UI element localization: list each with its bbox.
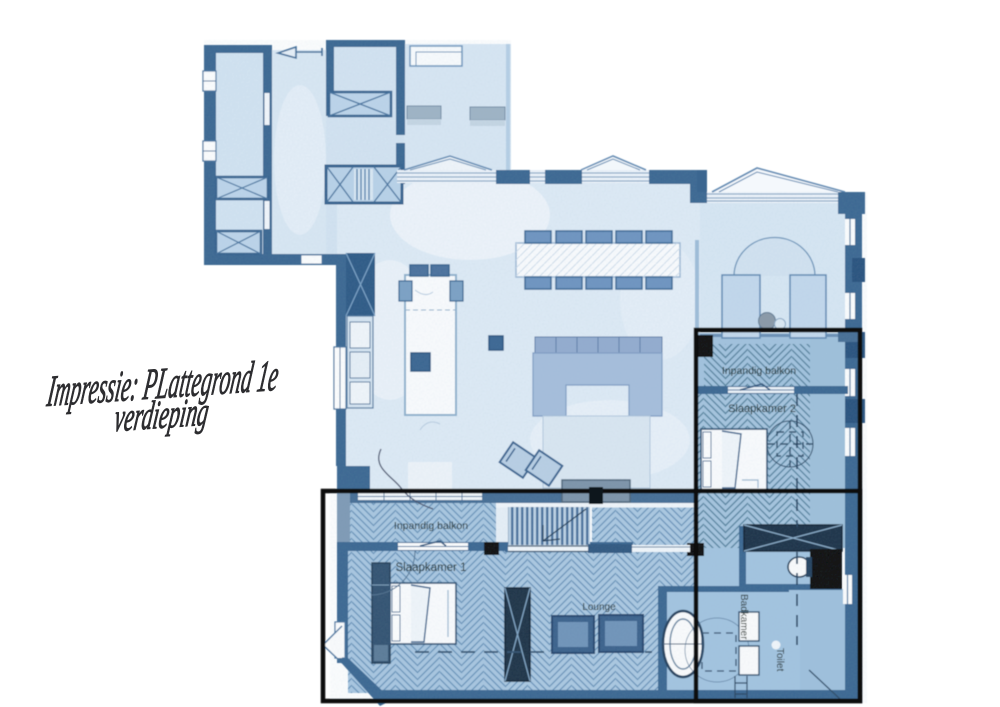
svg-text:verdieping: verdieping <box>112 389 212 441</box>
svg-text:Slaapkamer 2: Slaapkamer 2 <box>728 403 796 415</box>
svg-text:Inpandig balkon: Inpandig balkon <box>722 365 796 377</box>
svg-text:Badkamer: Badkamer <box>738 594 749 640</box>
svg-text:Inpandig balkon: Inpandig balkon <box>394 520 468 532</box>
svg-text:Toilet: Toilet <box>774 648 785 672</box>
svg-text:Lounge: Lounge <box>582 602 616 613</box>
svg-text:Slaapkamer 1: Slaapkamer 1 <box>396 562 467 574</box>
